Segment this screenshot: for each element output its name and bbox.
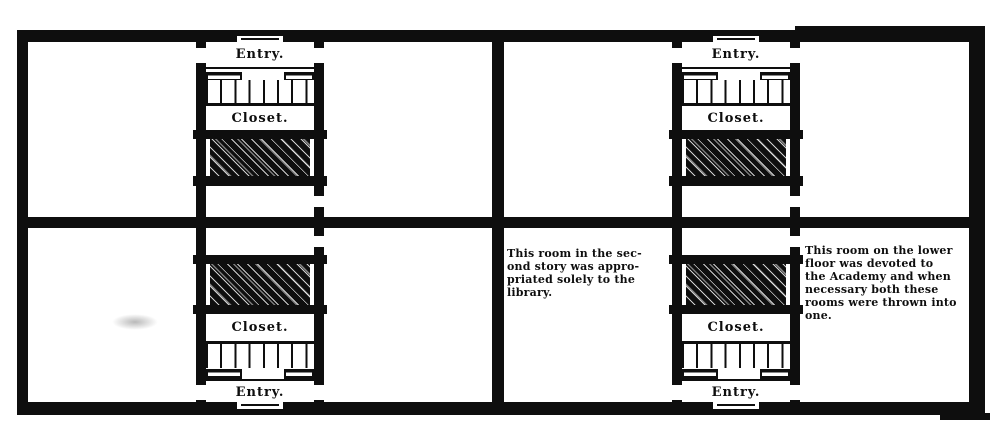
- stair-landing-band: [206, 368, 314, 381]
- door-opening: [314, 46, 324, 65]
- closet-room: Closet.: [206, 106, 314, 130]
- door-threshold: [717, 404, 755, 406]
- door-opening: [314, 234, 324, 249]
- door-threshold: [717, 38, 755, 40]
- closet-label: Closet.: [231, 111, 288, 126]
- door-opening: [790, 194, 800, 209]
- annotation-library-text: This room in the sec- ond story was appr…: [507, 247, 675, 299]
- annotation-line: rooms were thrown into: [805, 296, 973, 309]
- winder-steps-left: [206, 369, 242, 379]
- entry-room: Entry.: [206, 382, 314, 402]
- chimney-mass: [210, 264, 310, 305]
- annotation-line: floor was devoted to: [805, 257, 973, 270]
- winder-steps-right: [760, 369, 790, 379]
- door-threshold: [241, 404, 279, 406]
- chimney-cap-top: [193, 255, 327, 264]
- winder-steps-right: [284, 369, 314, 379]
- stair-treads: [206, 80, 314, 106]
- annotation-academy-text: This room on the lower floor was devoted…: [805, 244, 973, 322]
- door-opening: [672, 46, 682, 65]
- chimney-cap-bottom: [669, 176, 803, 186]
- chimney-cap-bottom: [193, 176, 327, 186]
- chimney-cap-bottom: [193, 305, 327, 314]
- stair-landing-band: [682, 67, 790, 80]
- annotation-line: This room on the lower: [805, 244, 973, 257]
- stair-unit-left-bottom: Closet. Entry.: [196, 228, 324, 402]
- winder-steps-left: [682, 369, 718, 379]
- closet-room: Closet.: [682, 314, 790, 341]
- closet-room: Closet.: [682, 106, 790, 130]
- door-opening: [196, 383, 206, 402]
- scan-smudge: [112, 314, 158, 330]
- door-opening: [314, 383, 324, 402]
- chimney-cap-bottom: [669, 305, 803, 314]
- entry-room: Entry.: [682, 42, 790, 67]
- door-threshold: [241, 38, 279, 40]
- annotation-line: library.: [507, 286, 675, 299]
- closet-label: Closet.: [231, 320, 288, 335]
- entry-label: Entry.: [712, 385, 761, 400]
- annotation-line: one.: [805, 309, 973, 322]
- closet-label: Closet.: [707, 320, 764, 335]
- annotation-line: This room in the sec-: [507, 247, 675, 260]
- chimney-cap-top: [193, 130, 327, 139]
- stair-unit-right-top: Entry. Closet.: [672, 42, 800, 217]
- annotation-line: priated solely to the: [507, 273, 675, 286]
- door-opening: [790, 234, 800, 249]
- annotation-line: the Academy and when: [805, 270, 973, 283]
- stair-treads: [682, 80, 790, 106]
- annotation-line: ond story was appro-: [507, 260, 675, 273]
- stair-treads: [682, 341, 790, 368]
- door-opening: [672, 383, 682, 402]
- door-opening: [790, 383, 800, 402]
- annotation-line: necessary both these: [805, 283, 973, 296]
- outer-wall-top-thick-segment: [795, 26, 985, 32]
- door-opening: [790, 46, 800, 65]
- chimney-cap-top: [669, 130, 803, 139]
- chimney-mass: [686, 264, 786, 305]
- entry-label: Entry.: [712, 47, 761, 62]
- stair-unit-left-top: Entry. Closet.: [196, 42, 324, 217]
- door-opening: [196, 46, 206, 65]
- floor-plan-figure: Entry. Closet. Closet. E: [0, 0, 1000, 431]
- chimney-mass: [210, 139, 310, 176]
- stair-landing-band: [206, 67, 314, 80]
- closet-room: Closet.: [206, 314, 314, 341]
- middle-floor-wall: [17, 217, 985, 228]
- stair-treads: [206, 341, 314, 368]
- chimney-mass: [686, 139, 786, 176]
- stair-landing-band: [682, 368, 790, 381]
- chimney-cap-top: [669, 255, 803, 264]
- entry-room: Entry.: [206, 42, 314, 67]
- entry-room: Entry.: [682, 382, 790, 402]
- entry-label: Entry.: [236, 385, 285, 400]
- door-opening: [314, 194, 324, 209]
- stair-unit-right-bottom: Closet. Entry.: [672, 228, 800, 402]
- closet-label: Closet.: [707, 111, 764, 126]
- entry-label: Entry.: [236, 47, 285, 62]
